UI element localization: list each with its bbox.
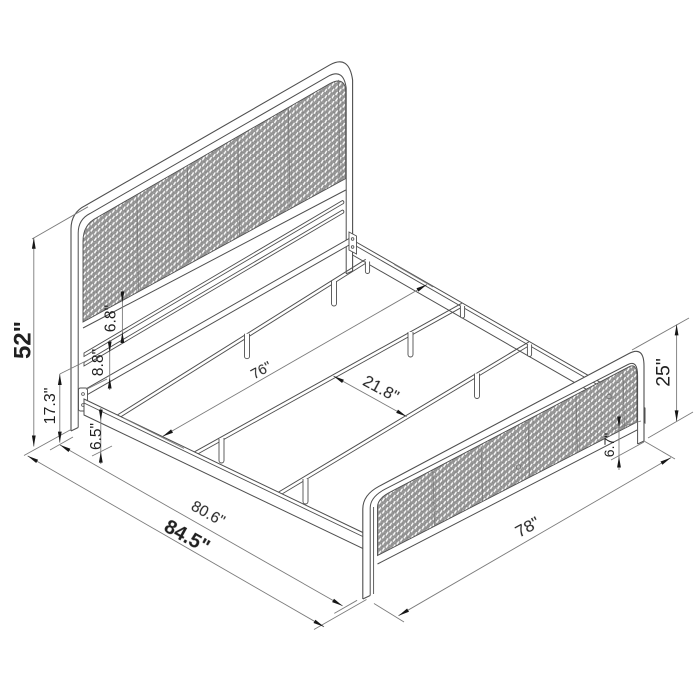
svg-text:17.3": 17.3" [42,388,59,425]
svg-text:25": 25" [653,358,675,387]
svg-text:6.5": 6.5" [88,423,105,450]
svg-text:6.8": 6.8" [103,305,120,332]
svg-text:6.7": 6.7" [601,433,617,457]
svg-text:8.8": 8.8" [90,349,107,376]
svg-text:52": 52" [9,321,36,359]
